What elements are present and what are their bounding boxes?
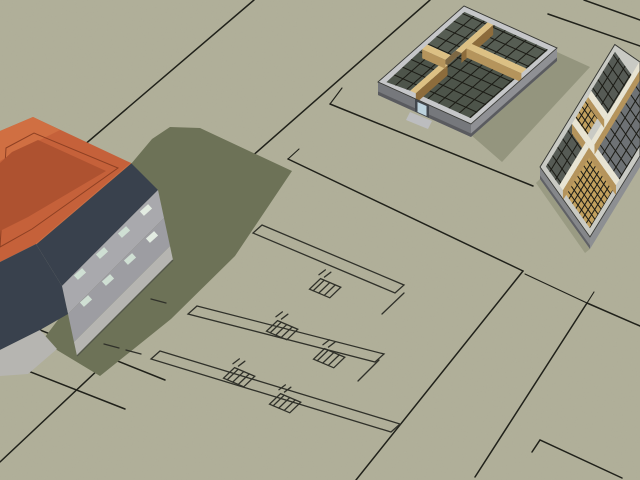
viewport-3d-scene[interactable] — [0, 0, 640, 480]
app-viewport[interactable] — [0, 0, 640, 480]
